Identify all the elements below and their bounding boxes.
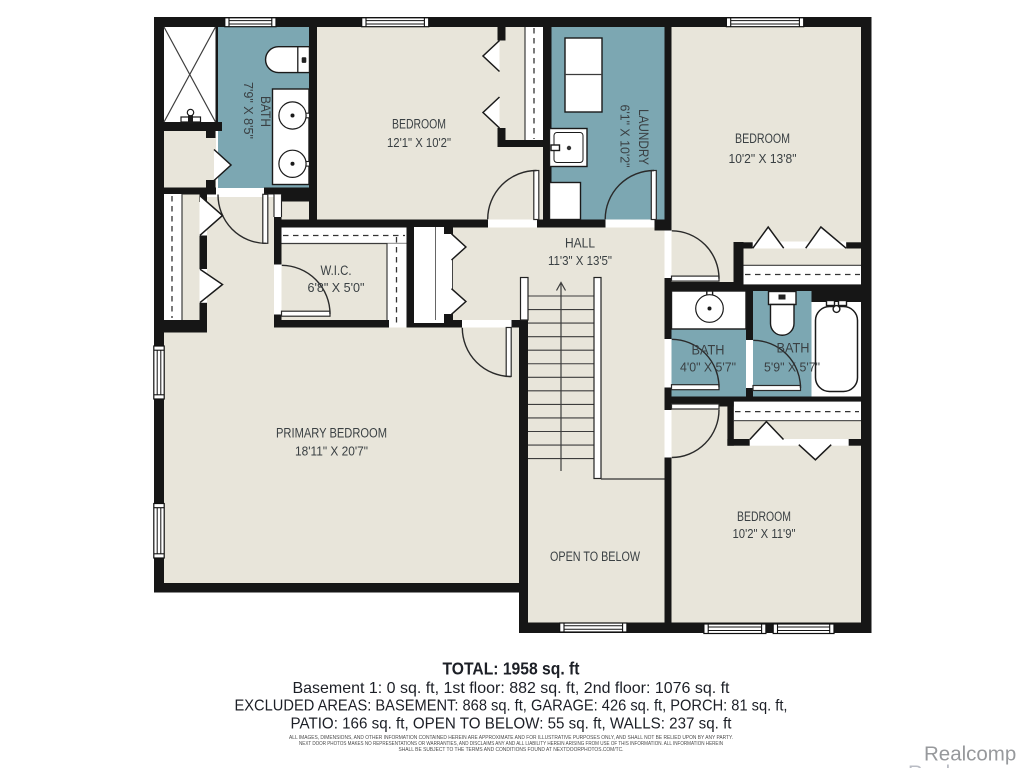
svg-text:7'9" X 8'5": 7'9" X 8'5" [241, 82, 256, 139]
svg-text:BATH: BATH [777, 341, 810, 356]
svg-text:OPEN TO BELOW: OPEN TO BELOW [550, 549, 640, 564]
svg-text:BEDROOM: BEDROOM [392, 117, 446, 132]
svg-text:6'1" X 10'2": 6'1" X 10'2" [618, 105, 633, 168]
svg-text:BATH: BATH [692, 343, 725, 358]
svg-text:6'8" X 5'0": 6'8" X 5'0" [308, 280, 365, 295]
svg-text:11'3" X 13'5": 11'3" X 13'5" [548, 253, 612, 268]
svg-text:Realcomp: Realcomp [908, 762, 1000, 768]
svg-text:SHALL BE SUBJECT TO THE TERMS: SHALL BE SUBJECT TO THE TERMS AND CONDIT… [399, 747, 624, 753]
svg-text:BEDROOM: BEDROOM [735, 131, 790, 146]
svg-text:5'9" X 5'7": 5'9" X 5'7" [764, 360, 820, 375]
svg-text:12'1" X 10'2": 12'1" X 10'2" [387, 135, 451, 150]
svg-text:PRIMARY BEDROOM: PRIMARY BEDROOM [276, 426, 387, 441]
svg-text:18'11" X 20'7": 18'11" X 20'7" [295, 444, 368, 459]
svg-text:Basement 1: 0 sq. ft, 1st floo: Basement 1: 0 sq. ft, 1st floor: 882 sq.… [293, 680, 731, 697]
svg-text:BATH: BATH [258, 96, 273, 127]
svg-text:BEDROOM: BEDROOM [737, 509, 791, 524]
svg-text:10'2" X 13'8": 10'2" X 13'8" [729, 151, 797, 166]
svg-text:TOTAL: 1958 sq. ft: TOTAL: 1958 sq. ft [443, 659, 580, 679]
svg-text:LAUNDRY: LAUNDRY [636, 109, 651, 165]
svg-text:EXCLUDED AREAS: BASEMENT: 868: EXCLUDED AREAS: BASEMENT: 868 sq. ft, GA… [235, 698, 788, 715]
svg-text:4'0" X 5'7": 4'0" X 5'7" [680, 360, 736, 375]
svg-text:W.I.C.: W.I.C. [321, 263, 352, 278]
svg-text:HALL: HALL [565, 236, 595, 251]
svg-text:10'2" X 11'9": 10'2" X 11'9" [733, 526, 796, 541]
svg-text:PATIO: 166 sq. ft, OPEN TO BEL: PATIO: 166 sq. ft, OPEN TO BELOW: 55 sq.… [291, 716, 733, 733]
